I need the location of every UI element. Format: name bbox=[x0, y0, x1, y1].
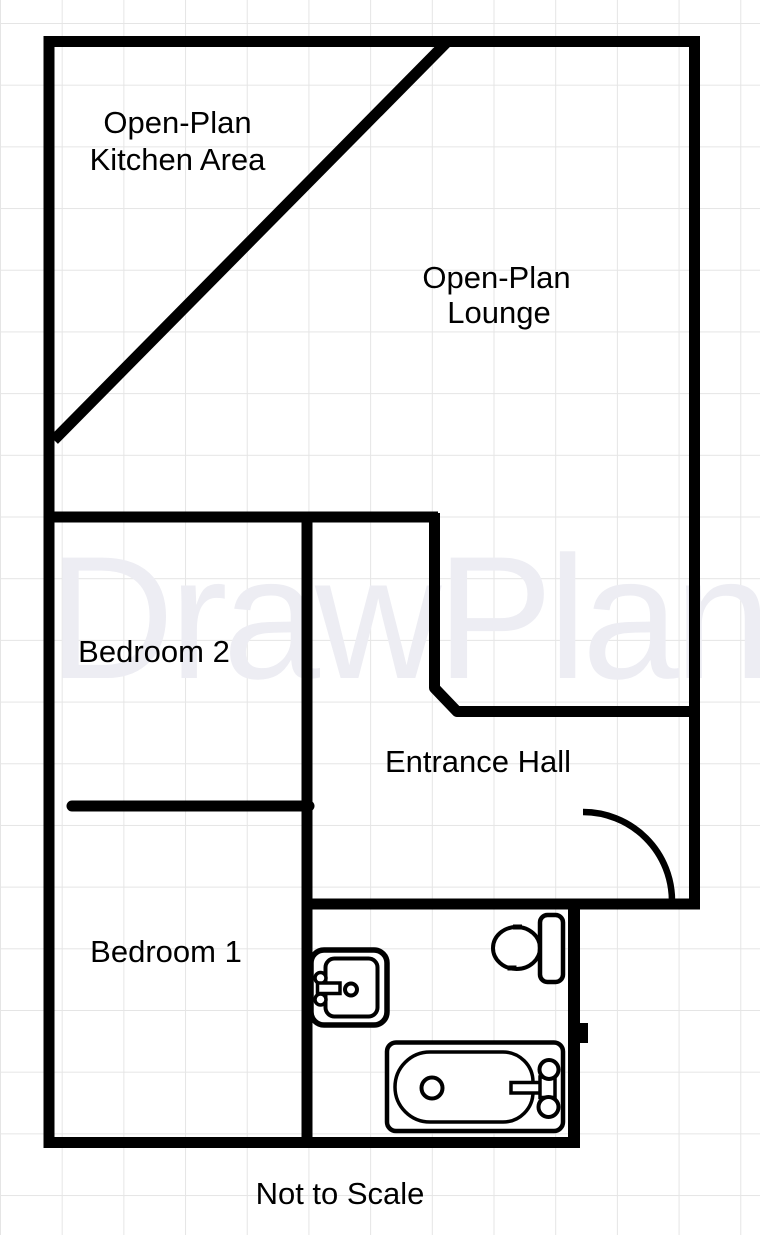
wall-bathroom-east-jog bbox=[572, 1023, 588, 1043]
toilet-hinge-top bbox=[513, 925, 522, 930]
lounge-label-line2: Lounge bbox=[447, 295, 550, 330]
toilet-hinge-bottom bbox=[508, 966, 517, 971]
bath-tap-hot bbox=[540, 1060, 559, 1079]
entrance-hall-label: Entrance Hall bbox=[385, 744, 571, 779]
bath-tap-cold bbox=[539, 1097, 559, 1117]
floor-plan-drawing: DrawPlan bbox=[0, 0, 760, 1235]
toilet-icon bbox=[493, 915, 563, 982]
sink-drain bbox=[345, 984, 357, 996]
bedroom1-label: Bedroom 1 bbox=[90, 934, 242, 969]
sink-tap-bottom bbox=[315, 994, 326, 1005]
lounge-label-line1: Open-Plan bbox=[422, 260, 570, 295]
bath-drain bbox=[422, 1078, 443, 1099]
kitchen-label-line1: Open-Plan bbox=[103, 105, 251, 140]
wall-kitchen-diagonal bbox=[54, 40, 449, 440]
floor-plan-canvas: DrawPlan bbox=[0, 0, 760, 1235]
not-to-scale-note: Not to Scale bbox=[256, 1176, 425, 1211]
sink-icon bbox=[311, 950, 387, 1025]
toilet-cistern bbox=[540, 915, 563, 982]
kitchen-label-line2: Kitchen Area bbox=[90, 142, 267, 177]
watermark-text: DrawPlan bbox=[48, 521, 760, 716]
toilet-bowl bbox=[493, 927, 540, 969]
entrance-door-swing-icon bbox=[583, 812, 672, 901]
bathtub-icon bbox=[387, 1043, 563, 1132]
sink-spout bbox=[318, 983, 341, 994]
bedroom2-label: Bedroom 2 bbox=[78, 634, 230, 669]
